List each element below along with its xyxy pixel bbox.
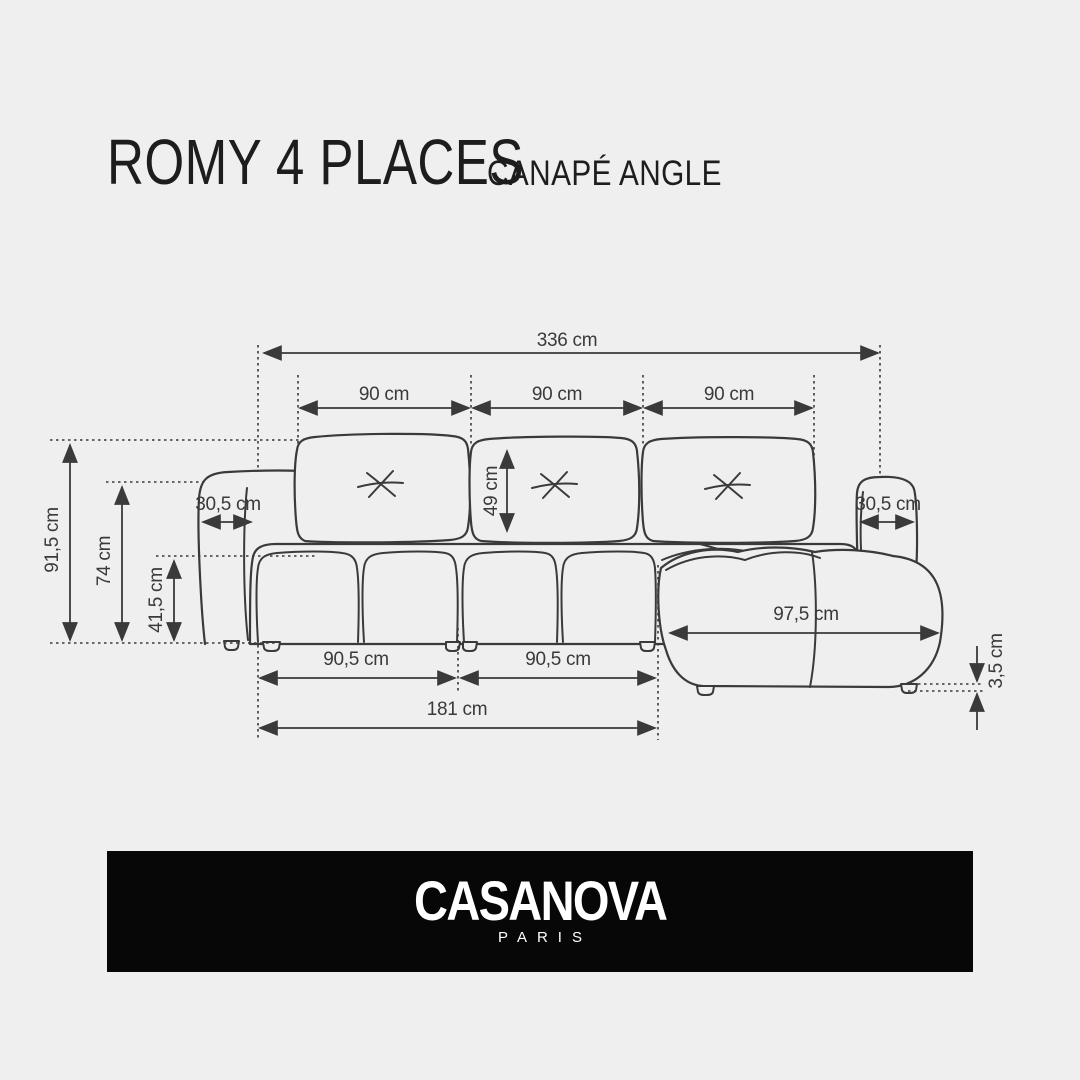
infographic-page: ROMY 4 PLACES CANAPÉ ANGLE [0,0,1080,1080]
dim-label-total-width: 336 cm [537,330,598,351]
dim-label-right-armrest: 30,5 cm [855,494,921,515]
dim-armrest-height: 74 cm [94,487,122,640]
dim-label-foot-height: 3,5 cm [986,633,1007,688]
back-cushion-1 [295,434,471,543]
dim-label-seat-height: 41,5 cm [146,567,167,633]
dim-double-module-width: 181 cm [260,699,655,728]
dim-label-double-module: 181 cm [427,699,488,720]
brand-city: PARIS [488,930,592,946]
dim-label-total-height: 91,5 cm [42,507,63,573]
dim-total-height: 91,5 cm [42,445,70,640]
dim-foot-height: 3,5 cm [977,633,1007,730]
dim-label-left-armrest: 30,5 cm [195,494,261,515]
brand-logo: CASANOVA [414,877,666,925]
dim-label-seat2: 90 cm [532,384,582,405]
dim-label-module1: 90,5 cm [323,649,389,670]
dim-seat-height: 41,5 cm [146,561,174,640]
dim-label-module2: 90,5 cm [525,649,591,670]
dim-seat-widths: 90 cm 90 cm 90 cm [300,384,812,408]
dim-label-armrest-height: 74 cm [94,536,115,586]
dim-label-seat1: 90 cm [359,384,409,405]
dim-total-width: 336 cm [264,330,878,353]
back-cushion-3 [642,437,816,543]
dim-label-back-cushion-height: 49 cm [481,466,502,516]
dim-label-chaise-length: 97,5 cm [773,604,839,625]
brand-banner: CASANOVA PARIS [107,851,973,972]
dim-label-seat3: 90 cm [704,384,754,405]
